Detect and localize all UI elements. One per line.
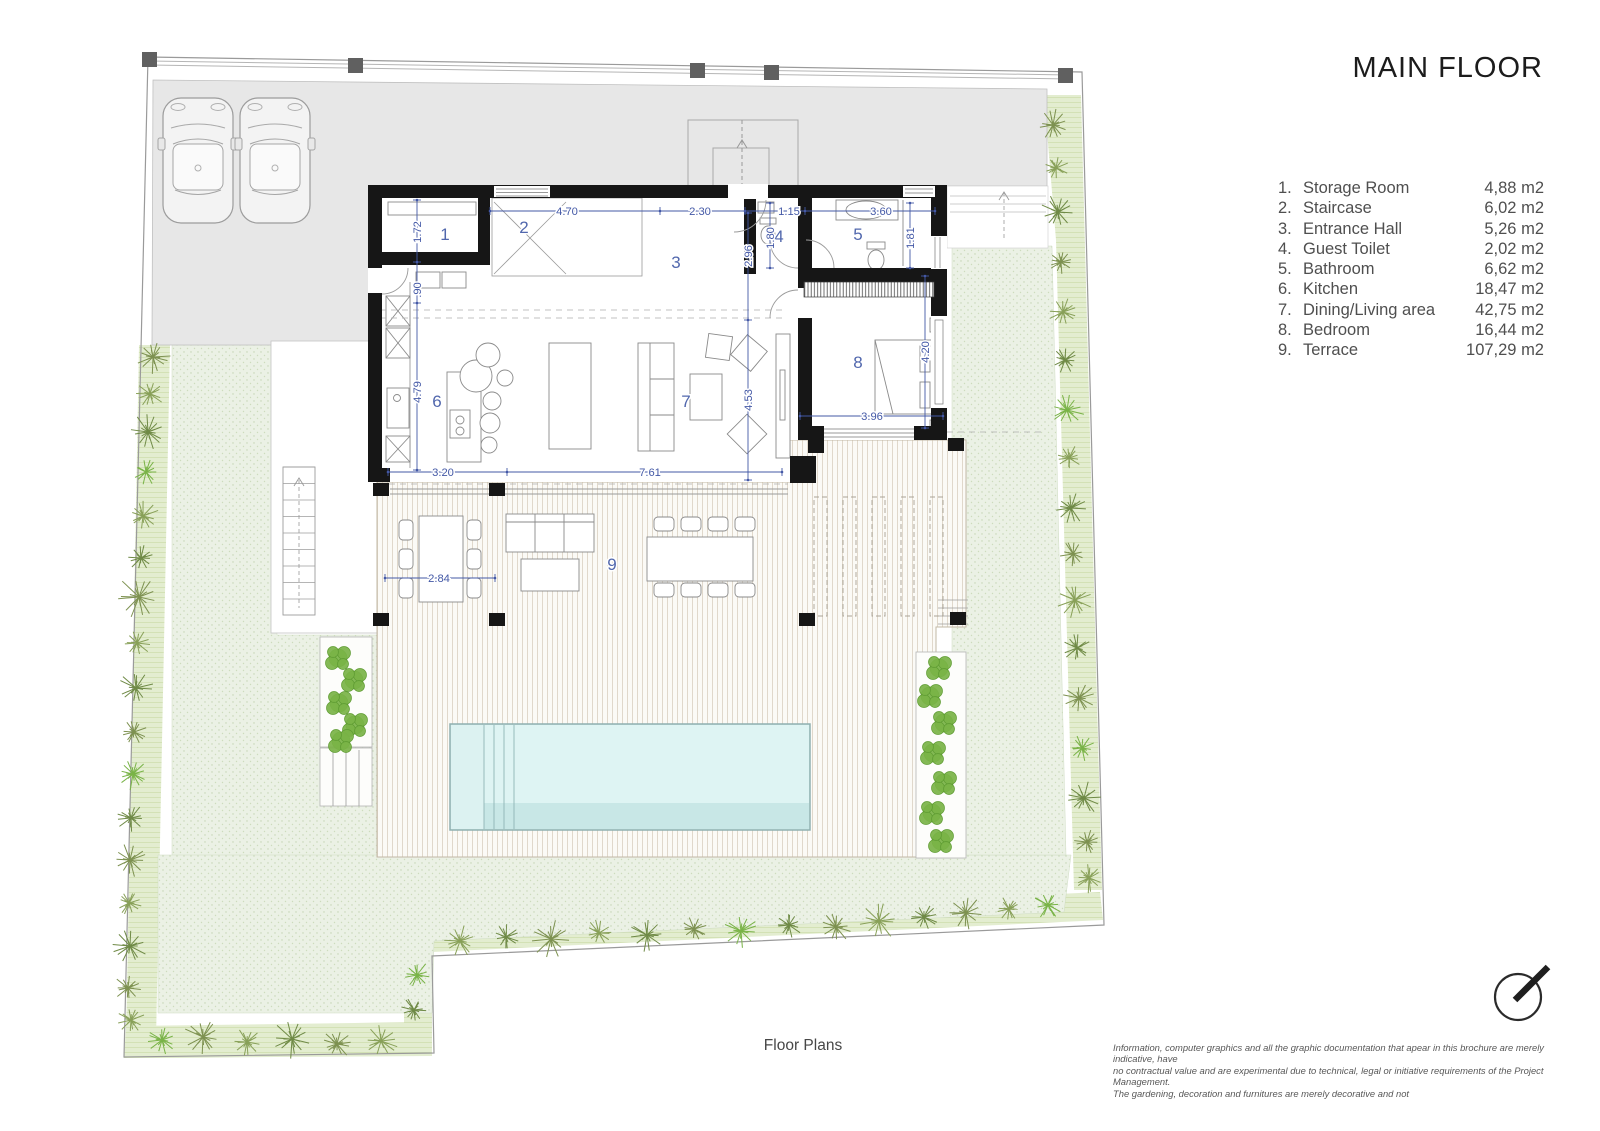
car-icon — [235, 98, 315, 223]
legend-row: 2.Staircase6,02 m2 — [1278, 198, 1544, 218]
dimension-label: 4.70 — [556, 206, 578, 218]
dimension-label: 1.15 — [778, 206, 800, 218]
room-number-label: 6 — [432, 392, 441, 411]
disclaimer-line: Information, computer graphics and all t… — [1113, 1042, 1546, 1065]
room-number-label: 1 — [440, 225, 449, 244]
dining-table — [549, 343, 591, 449]
bush-icon — [932, 772, 957, 795]
dimension-label: 4.79 — [412, 381, 424, 403]
dimension-label: 2.96 — [743, 245, 755, 267]
car-icon — [158, 98, 238, 223]
bush-icon — [921, 742, 946, 765]
legend-row: 6.Kitchen18,47 m2 — [1278, 279, 1544, 299]
side-patio — [271, 341, 377, 633]
legend-row: 3.Entrance Hall5,26 m2 — [1278, 219, 1544, 239]
floor-plan-page: 1234567894.702.301.153.601.72.904.792.96… — [0, 0, 1600, 1131]
dimension-label: 7.61 — [639, 467, 661, 479]
bush-icon — [932, 712, 957, 735]
bush-icon — [920, 802, 945, 825]
disclaimer-line: The gardening, decoration and furnitures… — [1113, 1088, 1546, 1099]
room-number-label: 7 — [681, 392, 690, 411]
page-title: MAIN FLOOR — [1353, 52, 1543, 85]
legend-row: 1.Storage Room4,88 m2 — [1278, 178, 1544, 198]
bush-icon — [342, 669, 367, 692]
bush-icon — [329, 730, 354, 753]
disclaimer: Information, computer graphics and all t… — [1113, 1042, 1546, 1099]
legend-row: 9.Terrace107,29 m2 — [1278, 340, 1544, 360]
dimension-label: 2.84 — [428, 573, 450, 585]
bush-icon — [327, 692, 352, 715]
dimension-label: 3.20 — [432, 467, 454, 479]
floor-plan-drawing: 1234567894.702.301.153.601.72.904.792.96… — [0, 0, 1600, 1131]
legend-row: 4.Guest Toilet2,02 m2 — [1278, 239, 1544, 259]
right-path — [947, 186, 1048, 248]
dimension-label: 1.80 — [765, 227, 777, 249]
dimension-label: 3.60 — [870, 206, 892, 218]
bush-icon — [929, 830, 954, 853]
entry-door-opening — [728, 184, 768, 199]
bush-icon — [927, 657, 952, 680]
dimension-label: 4.20 — [920, 341, 932, 363]
north-arrow-icon — [1495, 967, 1548, 1020]
bush-icon — [918, 685, 943, 708]
kitchen-sink — [387, 388, 409, 428]
legend-row: 7.Dining/Living area42,75 m2 — [1278, 300, 1544, 320]
dimension-label: 1.81 — [905, 227, 917, 249]
dimension-label: .90 — [412, 282, 424, 298]
dimension-label: 3.96 — [861, 411, 883, 423]
legend-row: 8.Bedroom16,44 m2 — [1278, 320, 1544, 340]
room-number-label: 5 — [853, 225, 862, 244]
disclaimer-line: no contractual value and are experimenta… — [1113, 1065, 1546, 1088]
room-number-label: 8 — [853, 353, 862, 372]
wardrobe — [804, 282, 934, 297]
coffee-table — [690, 374, 722, 420]
bush-icon — [326, 647, 351, 670]
room-legend: 1.Storage Room4,88 m22.Staircase6,02 m23… — [1278, 178, 1544, 361]
room-number-label: 9 — [607, 555, 616, 574]
legend-row: 5.Bathroom6,62 m2 — [1278, 259, 1544, 279]
dimension-label: 2.30 — [689, 206, 711, 218]
dimension-label: 4.53 — [743, 389, 755, 411]
room-number-label: 3 — [671, 253, 680, 272]
caption: Floor Plans — [703, 1037, 903, 1055]
sofa — [638, 343, 674, 451]
room-number-label: 2 — [519, 218, 528, 237]
dimension-label: 1.72 — [412, 221, 424, 243]
